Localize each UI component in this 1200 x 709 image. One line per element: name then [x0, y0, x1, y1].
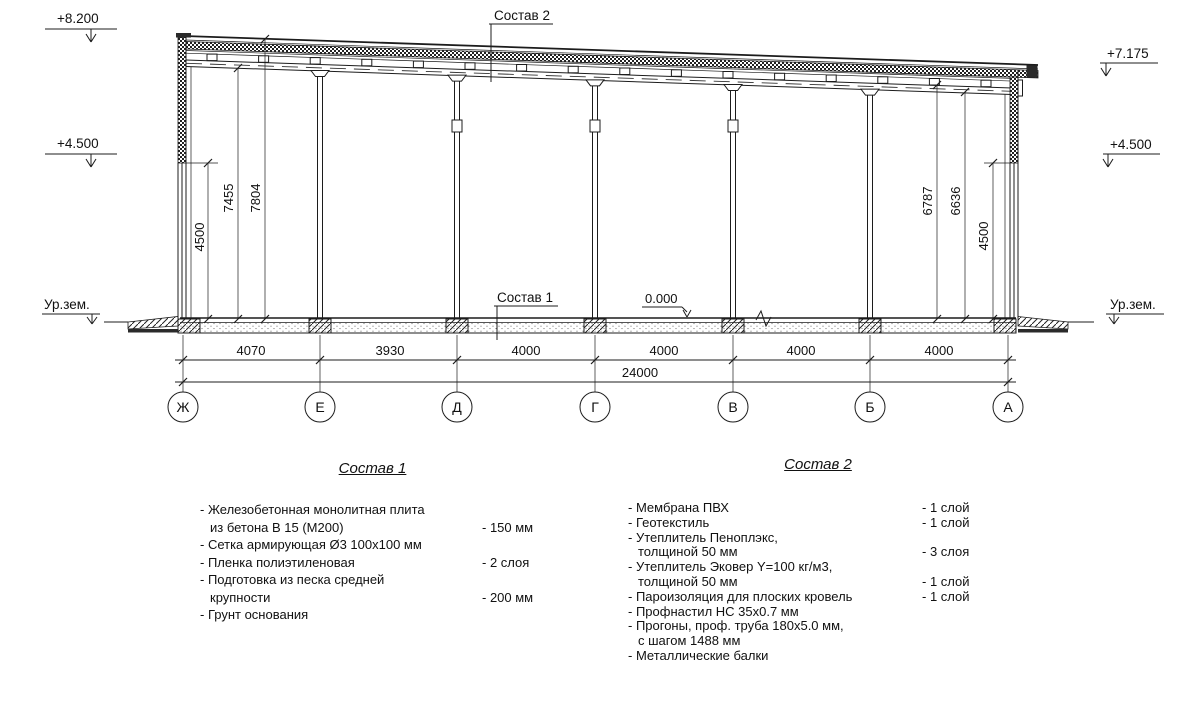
axis-bubble-label: Г — [591, 399, 599, 415]
spec-row: - Утеплитель Пеноплэкс, — [628, 531, 1008, 546]
dim-left-7455: 7455 — [221, 184, 236, 213]
spec2-title: Состав 2 — [628, 456, 1008, 473]
axis-bubble-label: Д — [452, 399, 462, 415]
elevation-left-top: +8.200 — [57, 11, 99, 26]
spec-row: - Пароизоляция для плоских кровель- 1 сл… — [628, 590, 1008, 605]
elevation-zero: 0.000 — [645, 291, 678, 306]
spec-row: - Железобетонная монолитная плита — [200, 501, 545, 519]
spec-row: - Сетка армирующая Ø3 100х100 мм — [200, 536, 545, 554]
axis-bubble-label: А — [1003, 399, 1013, 415]
spec-row: толщиной 50 мм- 3 слоя — [628, 545, 1008, 560]
interior-columns — [311, 71, 879, 318]
span-dim: 4000 — [512, 343, 541, 358]
spec-row: - Прогоны, проф. труба 180х5.0 мм, — [628, 619, 1008, 634]
elevation-left-ground: Ур.зем. — [44, 297, 90, 312]
axis-bubble-label: Е — [315, 399, 324, 415]
total-dim: 24000 — [622, 365, 658, 380]
dim-right-4500: 4500 — [976, 222, 991, 251]
spec-row: - Грунт основания — [200, 606, 545, 624]
span-dimensions: 4070 3930 4000 4000 4000 4000 24000 — [175, 35, 1016, 392]
span-dim: 4000 — [650, 343, 679, 358]
roof-assembly — [184, 36, 1038, 96]
dim-left-4500: 4500 — [192, 223, 207, 252]
span-dim: 4000 — [787, 343, 816, 358]
span-dim: 4000 — [925, 343, 954, 358]
spec1-title: Состав 1 — [200, 460, 545, 477]
spec-list-floor: Состав 1 - Железобетонная монолитная пли… — [200, 460, 545, 624]
elevation-right-mid: +4.500 — [1110, 137, 1152, 152]
spec-row: с шагом 1488 мм — [628, 634, 1008, 649]
spec-list-roof: Состав 2 - Мембрана ПВХ- 1 слой - Геотек… — [628, 456, 1008, 664]
dim-right-6636: 6636 — [948, 187, 963, 216]
spec-row: крупности- 200 мм — [200, 589, 545, 607]
spec-row: - Профнастил НС 35х0.7 мм — [628, 605, 1008, 620]
spec-row: - Пленка полиэтиленовая- 2 слоя — [200, 554, 545, 572]
axis-bubble-label: В — [728, 399, 737, 415]
spec-row: - Мембрана ПВХ- 1 слой — [628, 501, 1008, 516]
dim-right-6787: 6787 — [920, 187, 935, 216]
spec-row: толщиной 50 мм- 1 слой — [628, 575, 1008, 590]
left-wall — [176, 33, 218, 318]
roof-edge-cap — [1027, 66, 1038, 78]
callout-roof-label: Состав 2 — [494, 8, 550, 23]
callout-floor-label: Состав 1 — [497, 290, 553, 305]
elevation-right-top: +7.175 — [1107, 46, 1149, 61]
axis-bubble-label: Б — [865, 399, 874, 415]
elevation-left-mid: +4.500 — [57, 136, 99, 151]
span-dim: 4070 — [237, 343, 266, 358]
drawing-sheet: +8.200 +4.500 Ур.зем. +7.175 +4.500 Ур.з… — [0, 0, 1200, 709]
spec-row: из бетона В 15 (М200)- 150 мм — [200, 519, 545, 537]
span-dim: 3930 — [376, 343, 405, 358]
dim-left-7804: 7804 — [248, 184, 263, 213]
section-drawing: +8.200 +4.500 Ур.зем. +7.175 +4.500 Ур.з… — [0, 0, 1200, 709]
right-wall — [984, 70, 1018, 318]
elevation-right-ground: Ур.зем. — [1110, 297, 1156, 312]
spec-row: - Подготовка из песка средней — [200, 571, 545, 589]
spec-row: - Металлические балки — [628, 649, 1008, 664]
axis-bubbles: Ж Е Д Г В Б А — [168, 392, 1023, 422]
spec-row: - Геотекстиль- 1 слой — [628, 516, 1008, 531]
spec-row: - Утеплитель Эковер Y=100 кг/м3, — [628, 560, 1008, 575]
axis-bubble-label: Ж — [177, 399, 190, 415]
